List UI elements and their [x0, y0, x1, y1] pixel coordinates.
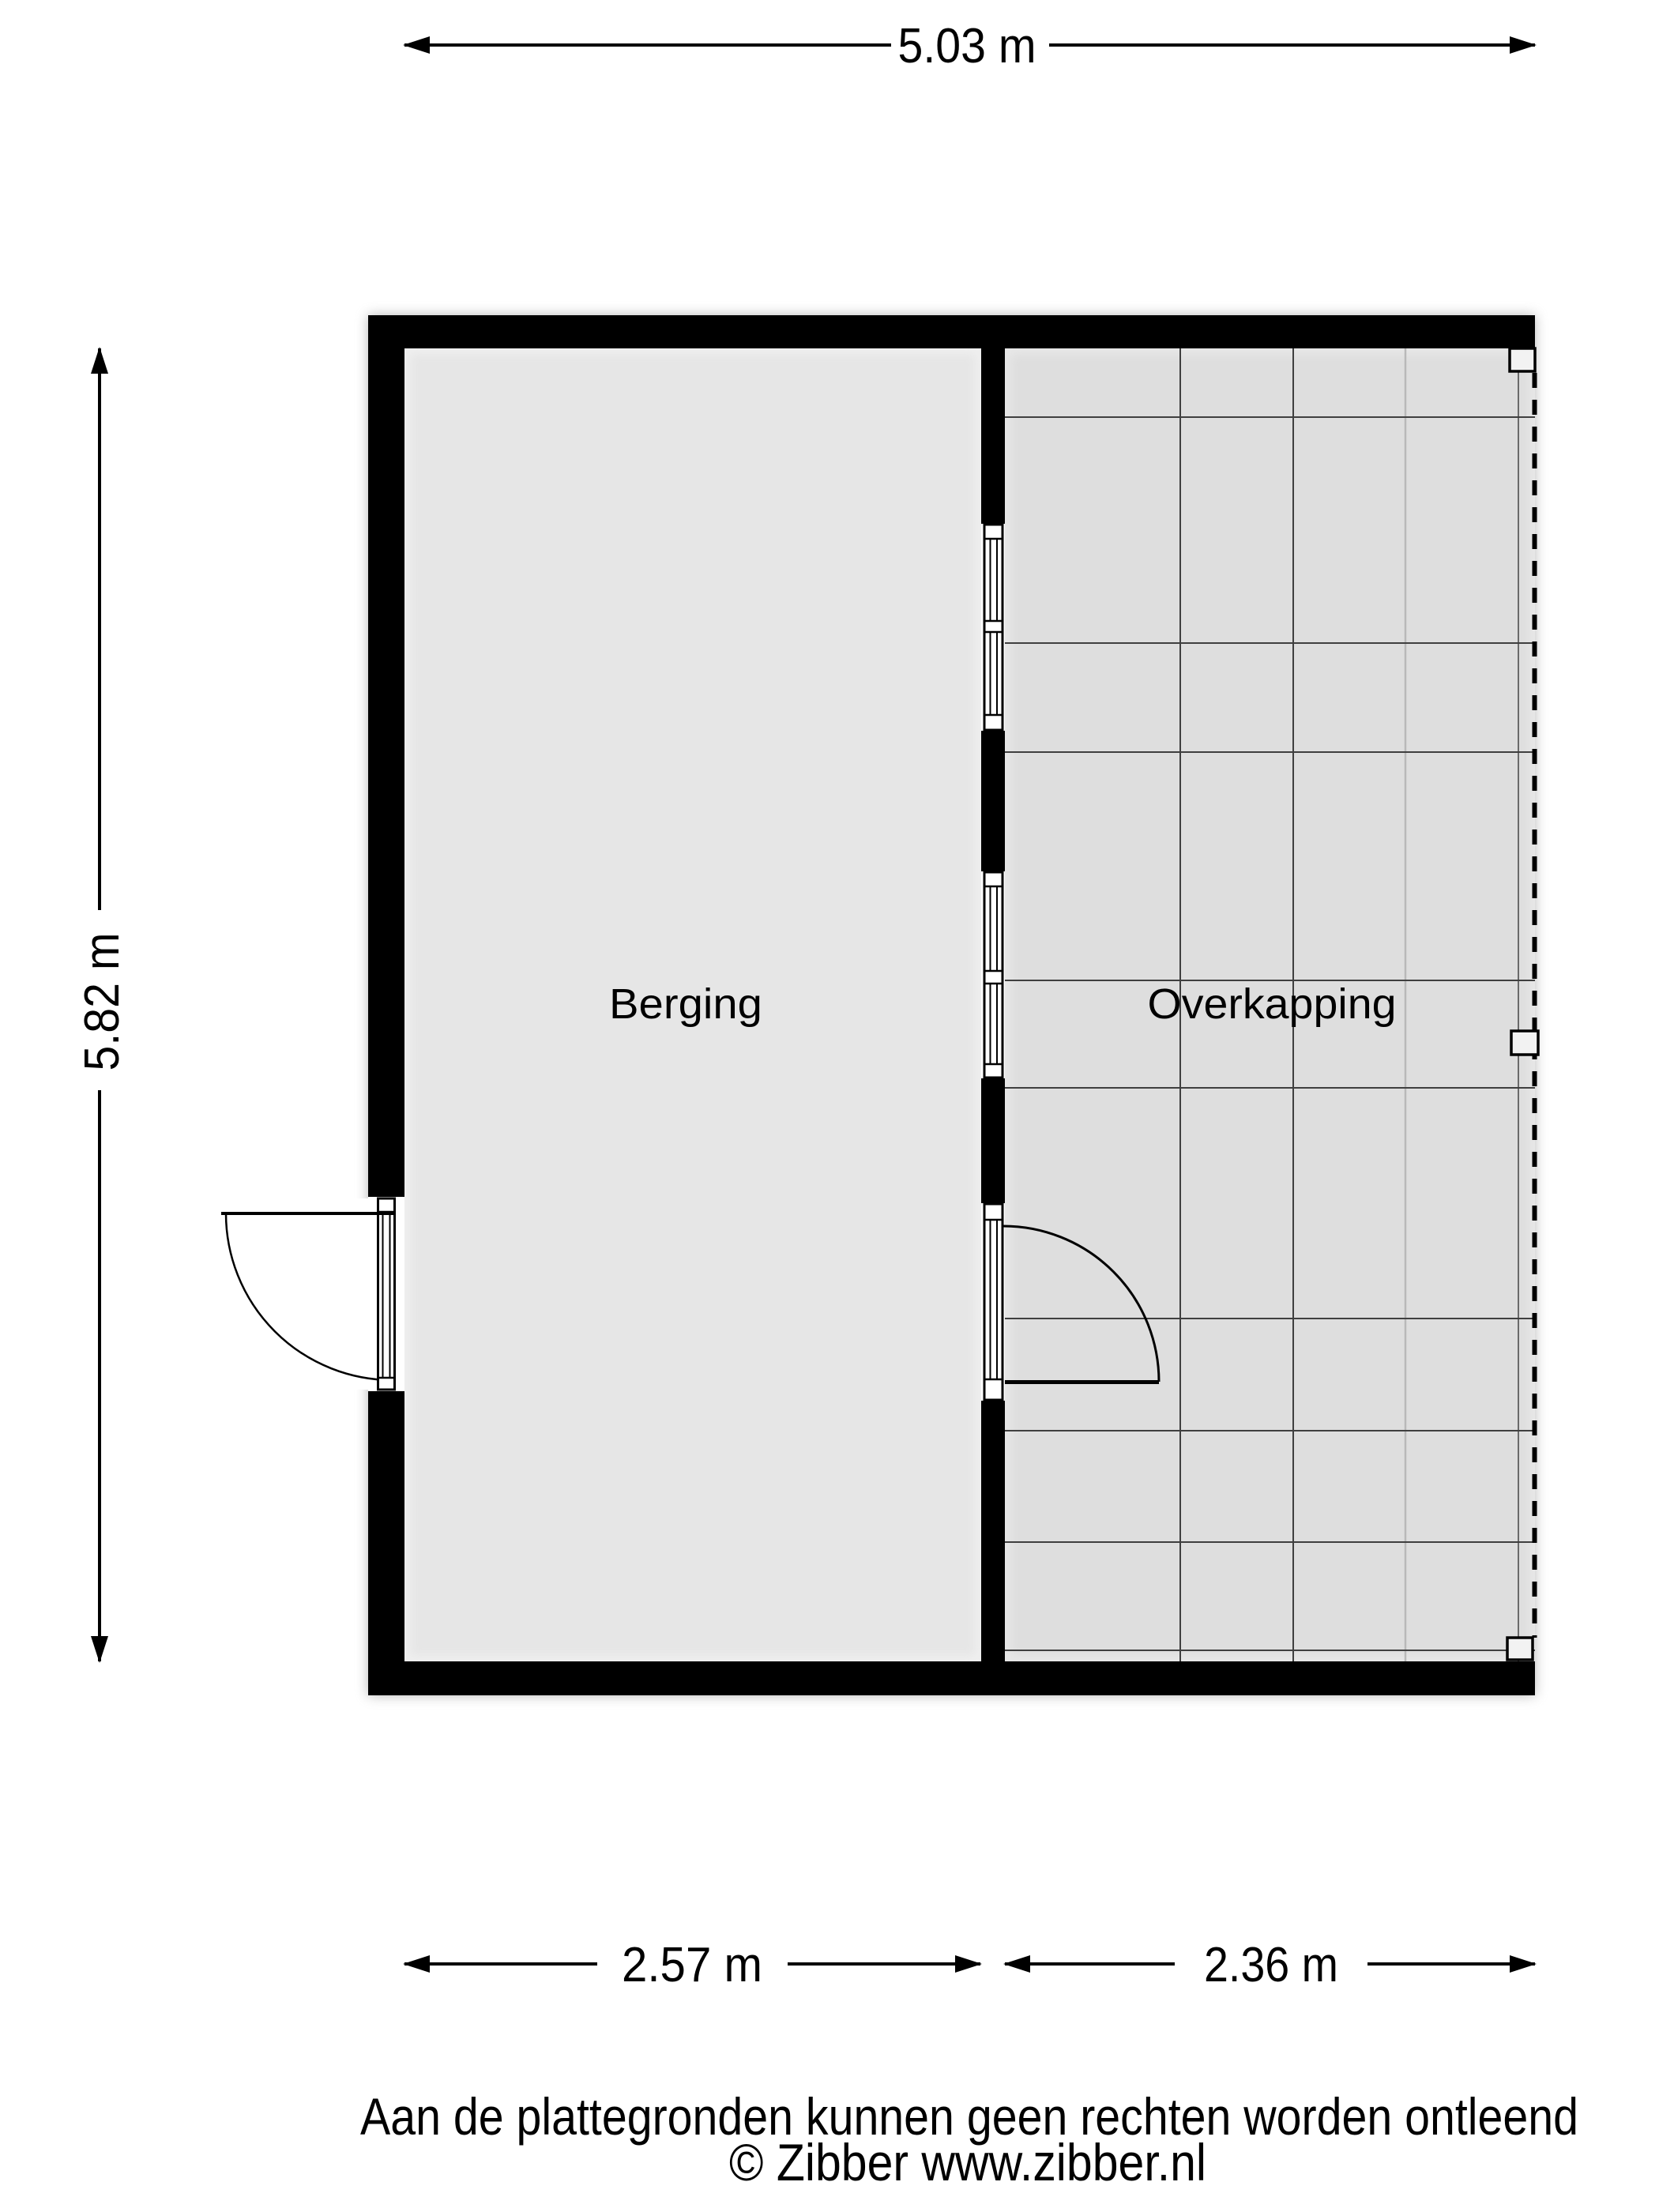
svg-text:© Zibber www.zibber.nl: © Zibber www.zibber.nl [729, 2133, 1206, 2191]
svg-text:Overkapping: Overkapping [1148, 980, 1397, 1028]
svg-text:Berging: Berging [609, 980, 762, 1028]
svg-text:5.03 m: 5.03 m [898, 19, 1036, 73]
svg-text:5.82 m: 5.82 m [75, 933, 130, 1071]
svg-text:2.57 m: 2.57 m [622, 1938, 762, 1992]
svg-text:2.36 m: 2.36 m [1204, 1938, 1338, 1992]
